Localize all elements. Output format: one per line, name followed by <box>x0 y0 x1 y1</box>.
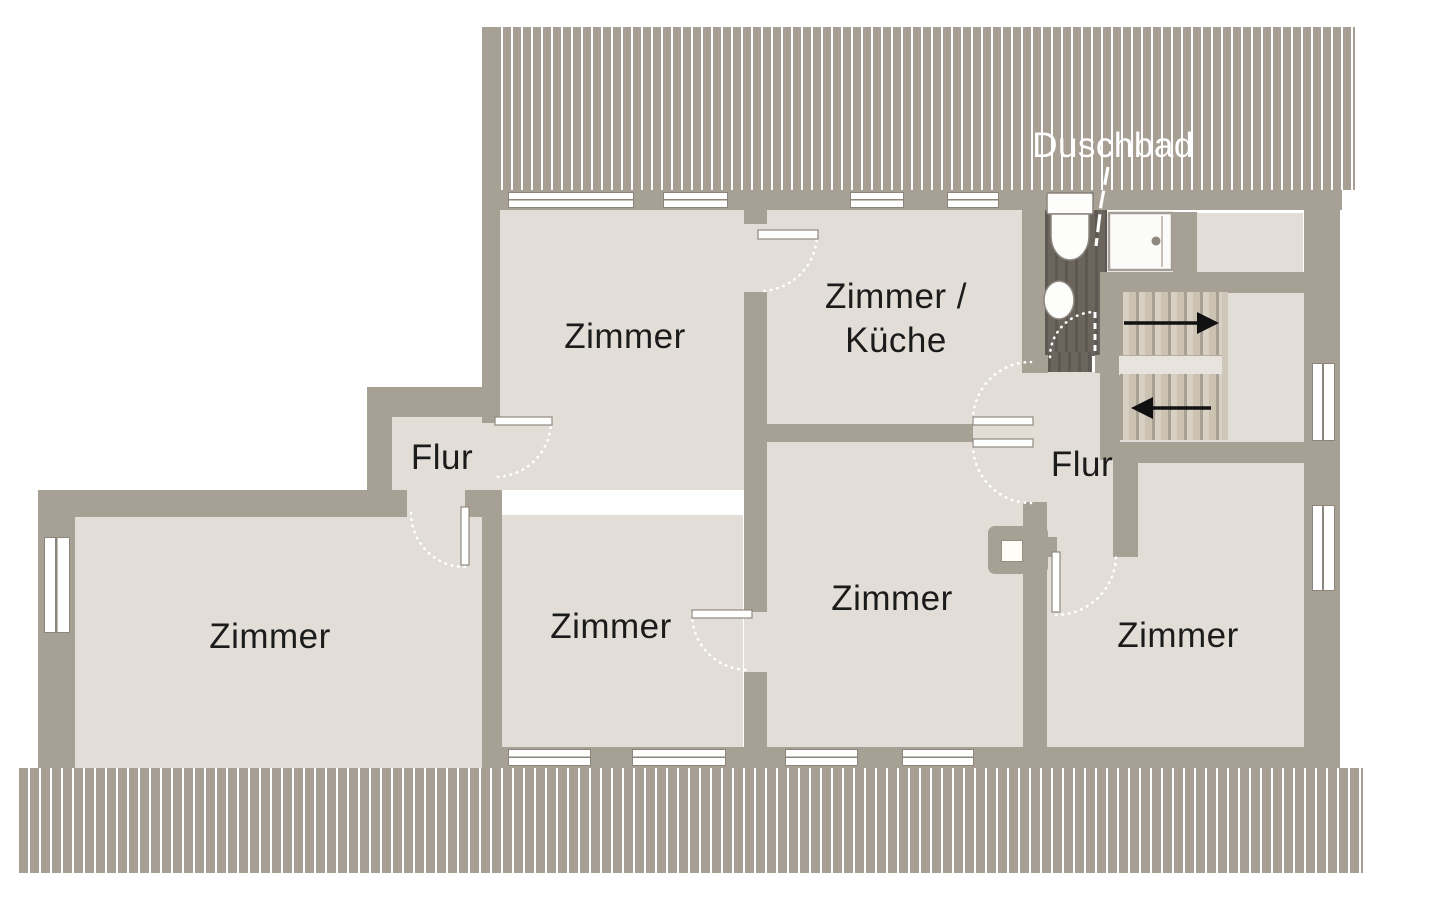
label-hall-right: Flur <box>1051 443 1113 487</box>
door-arc-icon <box>411 234 1116 670</box>
label-room-kitchen: Zimmer / Küche <box>825 275 967 363</box>
arrow-left-icon <box>1131 397 1211 419</box>
door-leaf <box>461 230 1060 618</box>
toilet-icon <box>1047 193 1093 260</box>
arrow-right-icon <box>1124 312 1219 334</box>
floor-plan: Duschbad Zimmer Zimmer / Küche Flur Zimm… <box>0 0 1436 913</box>
label-room-kitchen-line1: Zimmer / <box>825 275 967 319</box>
sink-icon <box>1044 281 1074 319</box>
shower-icon <box>1109 213 1172 270</box>
bathroom-leader-line <box>1096 167 1108 246</box>
label-bathroom: Duschbad <box>1032 124 1194 168</box>
label-room-center: Zimmer <box>831 577 953 621</box>
label-room-center-left: Zimmer <box>550 605 672 649</box>
label-room-kitchen-line2: Küche <box>825 319 967 363</box>
label-room-right: Zimmer <box>1117 614 1239 658</box>
plan-overlay <box>0 0 1436 913</box>
label-room-top-left: Zimmer <box>564 315 686 359</box>
label-hall-small: Flur <box>411 436 473 480</box>
label-room-left: Zimmer <box>209 615 331 659</box>
